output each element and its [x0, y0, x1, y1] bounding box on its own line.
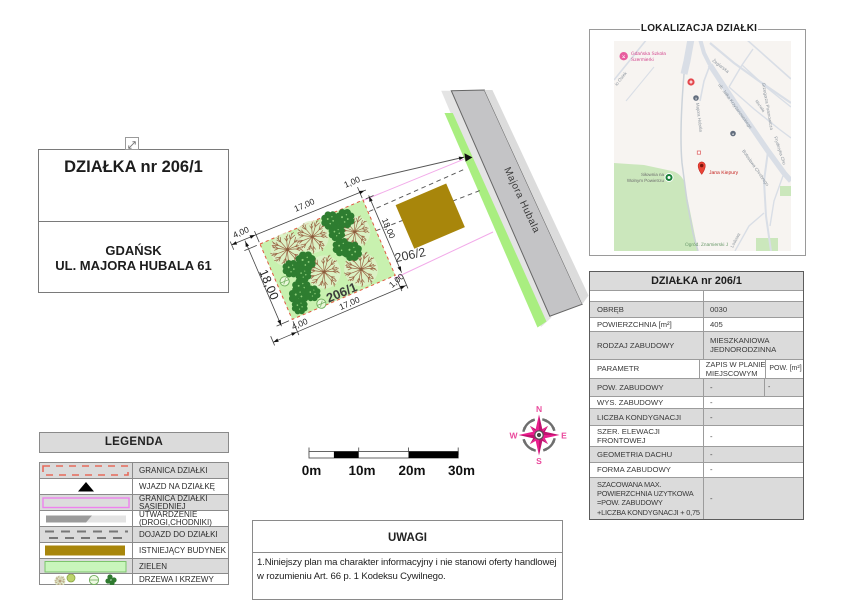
- svg-text:S: S: [536, 456, 542, 466]
- svg-text:4,00: 4,00: [231, 224, 250, 240]
- svg-text:17,00: 17,00: [292, 196, 316, 214]
- svg-text:W: W: [509, 431, 518, 441]
- svg-text:206/2: 206/2: [393, 245, 427, 265]
- svg-text:20m: 20m: [398, 463, 425, 478]
- svg-text:1,00: 1,00: [342, 174, 361, 190]
- svg-text:N: N: [536, 404, 542, 414]
- svg-text:E: E: [561, 431, 567, 441]
- svg-text:0m: 0m: [302, 463, 322, 478]
- svg-text:10m: 10m: [348, 463, 375, 478]
- svg-text:30m: 30m: [448, 463, 475, 478]
